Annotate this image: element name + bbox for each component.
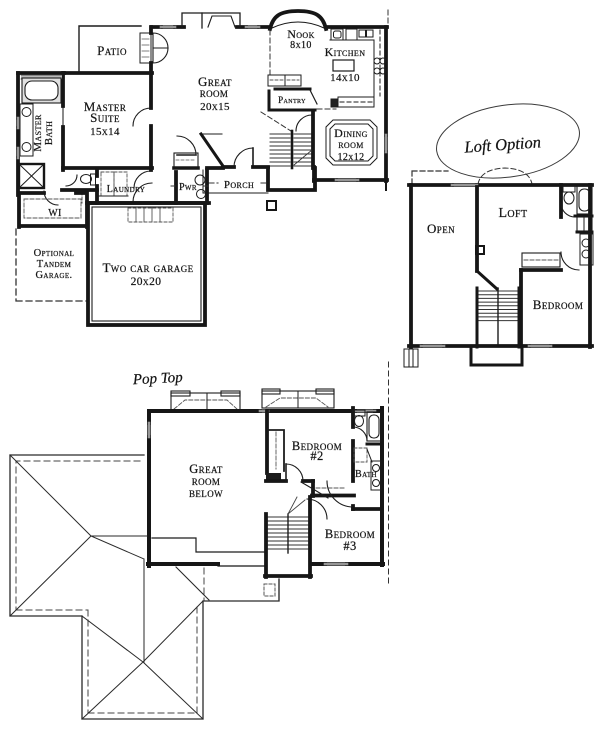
svg-text:Open: Open — [427, 221, 455, 236]
svg-text:Suite: Suite — [90, 110, 120, 125]
svg-text:Pwr: Pwr — [179, 182, 197, 193]
svg-text:Loft: Loft — [498, 206, 527, 221]
svg-text:below: below — [189, 486, 223, 500]
svg-text:Patio: Patio — [97, 43, 127, 58]
svg-text:Bath: Bath — [43, 121, 55, 146]
svg-text:#3: #3 — [343, 539, 356, 553]
svg-text:WI: WI — [48, 208, 62, 219]
svg-text:Laundry: Laundry — [107, 184, 145, 195]
svg-text:8x10: 8x10 — [290, 40, 312, 51]
svg-text:14x10: 14x10 — [330, 72, 360, 84]
svg-text:Nook: Nook — [287, 27, 315, 41]
svg-text:Tandem: Tandem — [37, 259, 72, 270]
svg-text:20x15: 20x15 — [200, 101, 230, 113]
svg-text:Garage.: Garage. — [35, 270, 72, 281]
svg-text:Two car garage: Two car garage — [102, 260, 193, 275]
svg-text:Pantry: Pantry — [278, 95, 306, 105]
svg-text:Kitchen: Kitchen — [325, 45, 366, 59]
svg-text:Loft Option: Loft Option — [463, 132, 542, 156]
svg-text:Pop Top: Pop Top — [131, 370, 183, 389]
svg-text:Porch: Porch — [224, 179, 254, 191]
svg-text:20x20: 20x20 — [131, 276, 162, 288]
svg-text:15x14: 15x14 — [90, 126, 120, 138]
svg-text:#2: #2 — [310, 449, 323, 463]
svg-text:Bedroom: Bedroom — [533, 297, 583, 312]
svg-text:Bath: Bath — [355, 469, 377, 480]
svg-text:12x12: 12x12 — [337, 152, 364, 163]
svg-text:room: room — [200, 85, 229, 100]
svg-text:room: room — [338, 137, 364, 151]
svg-text:Optional: Optional — [34, 248, 75, 259]
